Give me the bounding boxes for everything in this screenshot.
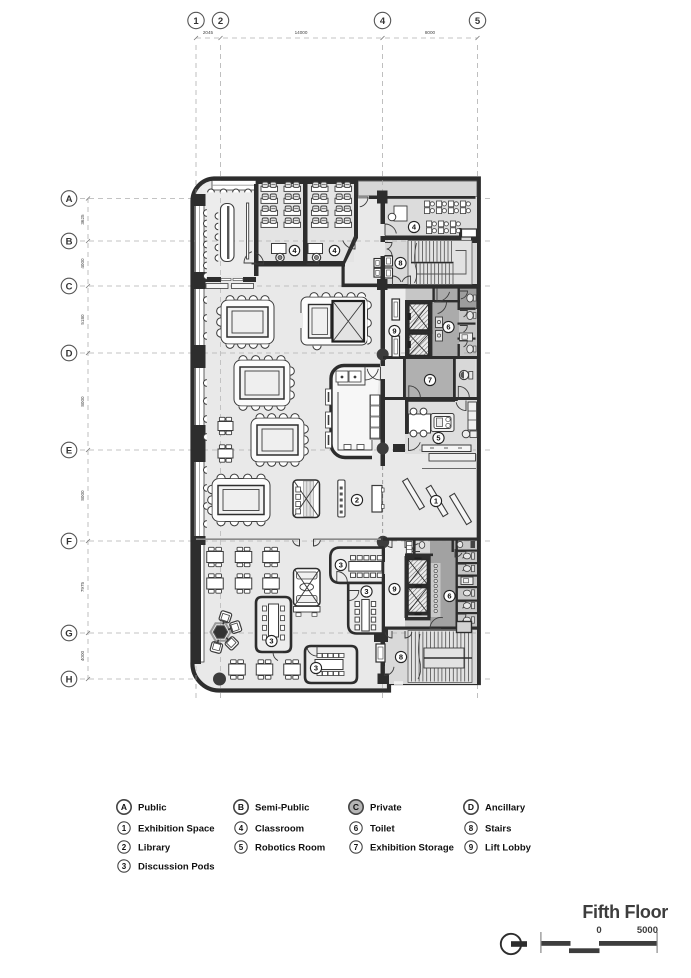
svg-text:5: 5 bbox=[436, 434, 440, 443]
svg-text:8000: 8000 bbox=[80, 490, 85, 501]
svg-text:1: 1 bbox=[122, 824, 127, 833]
svg-text:Exhibition Storage: Exhibition Storage bbox=[370, 842, 454, 853]
svg-text:4000: 4000 bbox=[80, 258, 85, 269]
svg-text:Semi-Public: Semi-Public bbox=[255, 802, 309, 813]
svg-text:1: 1 bbox=[193, 16, 199, 27]
svg-text:5000: 5000 bbox=[637, 925, 658, 936]
svg-text:3: 3 bbox=[314, 664, 318, 673]
svg-text:5: 5 bbox=[239, 843, 244, 852]
svg-text:Classroom: Classroom bbox=[255, 823, 304, 834]
svg-text:6: 6 bbox=[354, 824, 359, 833]
svg-text:7975: 7975 bbox=[80, 581, 85, 592]
svg-text:Robotics Room: Robotics Room bbox=[255, 842, 325, 853]
svg-text:8: 8 bbox=[398, 259, 402, 268]
svg-text:B: B bbox=[66, 236, 73, 247]
svg-text:9: 9 bbox=[392, 327, 396, 336]
svg-text:Ancillary: Ancillary bbox=[485, 802, 526, 813]
svg-text:5: 5 bbox=[475, 16, 481, 27]
svg-text:Toilet: Toilet bbox=[370, 823, 395, 834]
svg-text:C: C bbox=[66, 281, 73, 292]
svg-text:F: F bbox=[66, 536, 72, 547]
svg-text:4000: 4000 bbox=[80, 650, 85, 661]
svg-text:D: D bbox=[468, 802, 474, 812]
svg-text:2045: 2045 bbox=[203, 30, 214, 35]
svg-text:4: 4 bbox=[239, 824, 244, 833]
svg-text:8000: 8000 bbox=[425, 30, 436, 35]
svg-text:A: A bbox=[66, 194, 73, 205]
svg-text:14000: 14000 bbox=[295, 30, 308, 35]
svg-text:9: 9 bbox=[469, 843, 474, 852]
svg-text:7: 7 bbox=[354, 843, 359, 852]
svg-text:2: 2 bbox=[355, 496, 359, 505]
svg-text:3: 3 bbox=[122, 862, 127, 871]
svg-text:3: 3 bbox=[364, 587, 368, 596]
svg-text:9: 9 bbox=[392, 585, 396, 594]
svg-text:6: 6 bbox=[446, 323, 450, 332]
svg-text:0: 0 bbox=[596, 925, 601, 936]
svg-text:H: H bbox=[66, 674, 73, 685]
svg-text:2: 2 bbox=[218, 16, 223, 27]
svg-text:8000: 8000 bbox=[80, 396, 85, 407]
svg-text:6: 6 bbox=[447, 592, 451, 601]
svg-text:2: 2 bbox=[122, 843, 127, 852]
svg-text:C: C bbox=[353, 802, 359, 812]
svg-text:Lift Lobby: Lift Lobby bbox=[485, 842, 532, 853]
svg-text:A: A bbox=[121, 802, 127, 812]
svg-text:G: G bbox=[65, 628, 72, 639]
svg-text:Fifth Floor: Fifth Floor bbox=[582, 902, 668, 922]
svg-text:Public: Public bbox=[138, 802, 167, 813]
svg-text:Stairs: Stairs bbox=[485, 823, 511, 834]
svg-text:Discussion Pods: Discussion Pods bbox=[138, 861, 215, 872]
svg-text:7: 7 bbox=[428, 376, 432, 385]
svg-text:3625: 3625 bbox=[80, 214, 85, 225]
svg-text:E: E bbox=[66, 445, 72, 456]
svg-text:Private: Private bbox=[370, 802, 402, 813]
svg-text:3: 3 bbox=[269, 637, 273, 646]
svg-text:Library: Library bbox=[138, 842, 171, 853]
svg-text:8: 8 bbox=[469, 824, 474, 833]
svg-text:5180: 5180 bbox=[80, 314, 85, 325]
svg-text:B: B bbox=[238, 802, 244, 812]
svg-text:4: 4 bbox=[380, 16, 386, 27]
svg-text:3: 3 bbox=[339, 561, 343, 570]
svg-text:D: D bbox=[66, 348, 73, 359]
svg-text:1: 1 bbox=[434, 497, 438, 506]
svg-text:8: 8 bbox=[399, 653, 403, 662]
svg-text:Exhibition Space: Exhibition Space bbox=[138, 823, 215, 834]
